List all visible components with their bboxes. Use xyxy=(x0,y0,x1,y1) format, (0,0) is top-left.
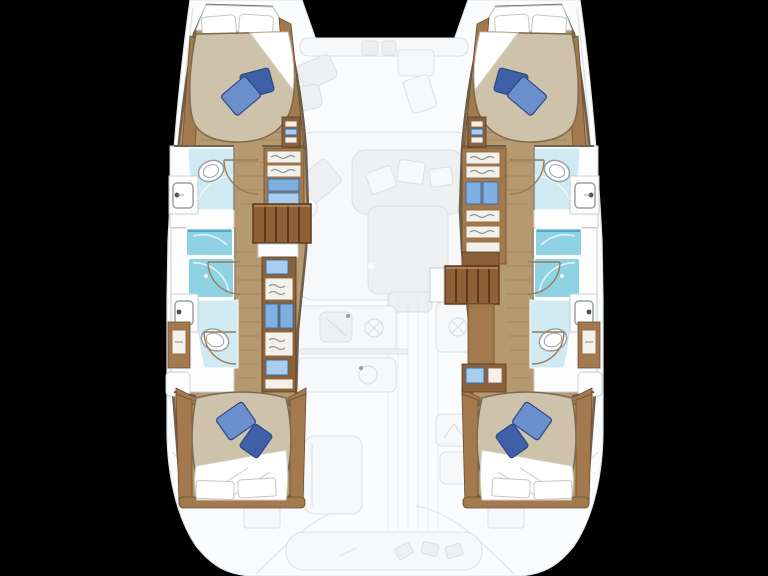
shelf xyxy=(300,349,408,354)
island-worktop xyxy=(298,358,396,392)
drawer-cabinet xyxy=(462,148,506,264)
galley-sink xyxy=(320,312,352,342)
forward-bench xyxy=(304,436,362,514)
companionway-steps xyxy=(253,204,311,243)
drawer-cabinet xyxy=(462,364,506,392)
wardrobe xyxy=(468,117,486,147)
sofa-cushion xyxy=(429,167,453,188)
catamaran-floorplan xyxy=(0,0,768,576)
landing xyxy=(258,244,298,257)
wardrobe xyxy=(282,117,300,147)
landing xyxy=(430,268,444,302)
table-leg xyxy=(368,263,374,269)
deck-locker xyxy=(398,50,434,76)
step-column xyxy=(468,304,494,364)
sofa-cushion xyxy=(397,159,426,184)
drawer-cabinet xyxy=(264,148,304,206)
drawer-cabinet xyxy=(262,257,296,392)
